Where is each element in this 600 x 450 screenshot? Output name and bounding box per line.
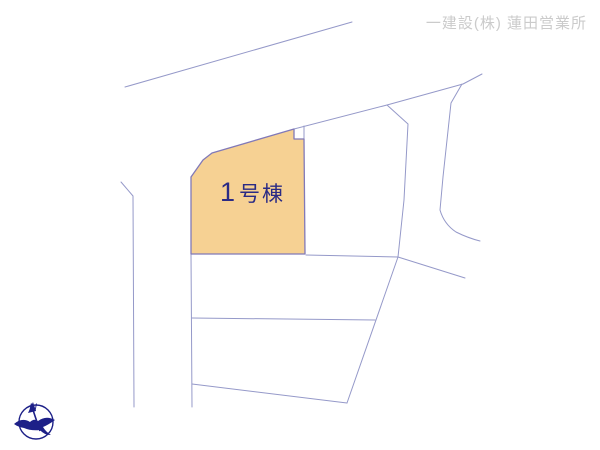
boundary-line-east-outer [440,84,480,241]
boundary-line-horizontal-middle [192,318,375,320]
boundary-line-horizontal-upper [306,255,398,257]
company-name: 一建設(株) 蓮田営業所 [426,12,587,33]
road-line-west [121,182,134,407]
boundary-line-bottom-slant [192,384,347,403]
plot-map [0,0,600,450]
compass-icon: N [14,398,62,446]
boundary-line-east-inner [387,105,408,257]
parcel-suffix: 号棟 [239,184,285,205]
road-line-upper-left [125,22,352,87]
compass-parts: N [14,402,55,439]
parcel-label: 1号棟 [220,179,285,206]
road-line-main-diagonal [294,74,482,129]
boundary-line-diagonal-south [347,257,398,403]
site-plan-canvas: 1号棟 一建設(株) 蓮田営業所 N [0,0,600,450]
parcel-number: 1 [220,179,235,206]
boundary-line-short-diagonal [398,257,465,278]
